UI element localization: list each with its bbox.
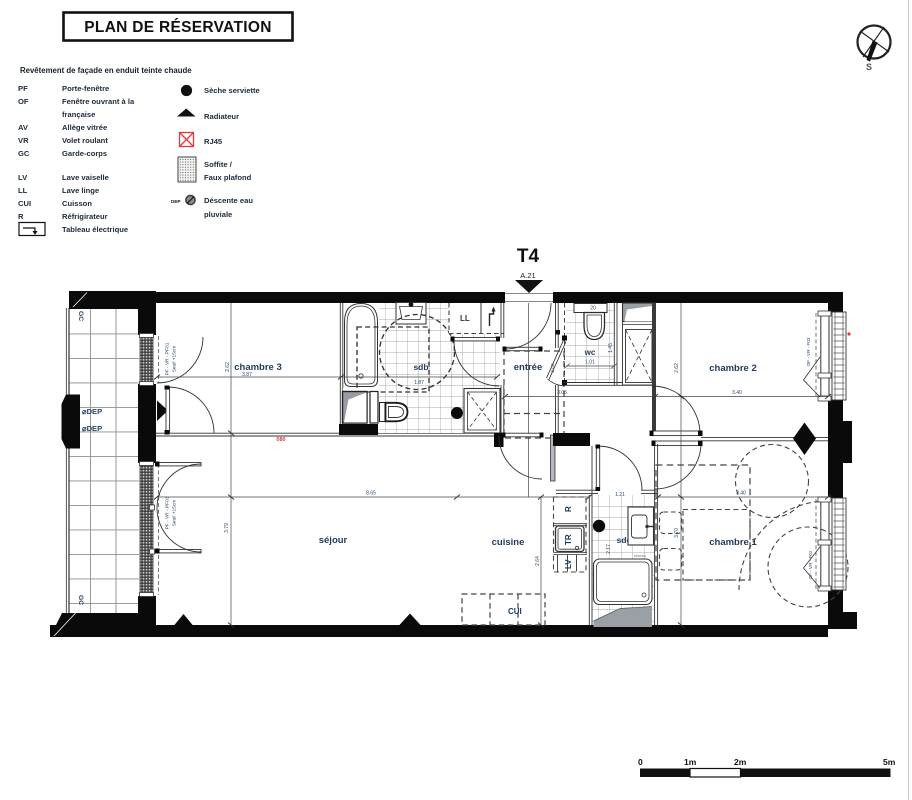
svg-text:2.62: 2.62 [225,362,231,372]
svg-text:CUI: CUI [18,199,31,208]
svg-text:OF - VR - F03: OF - VR - F03 [806,337,811,366]
svg-text:1m: 1m [684,757,697,767]
svg-text:3.05: 3.05 [557,390,567,396]
svg-text:⌀DEP: ⌀DEP [82,407,102,416]
svg-text:wc: wc [584,348,596,357]
svg-text:séjour: séjour [319,535,348,546]
svg-text:Revêtement de façade en enduit: Revêtement de façade en enduit teinte ch… [20,66,192,75]
svg-text:LL: LL [460,314,470,323]
svg-text:20: 20 [590,306,596,312]
svg-text:5m: 5m [883,757,896,767]
svg-text:Fenêtre ouvrant à la: Fenêtre ouvrant à la [62,97,135,106]
svg-text:Cuisson: Cuisson [62,199,92,208]
svg-text:Lave linge: Lave linge [62,186,99,195]
svg-text:Seuil +15cm: Seuil +15cm [172,500,178,527]
svg-text:Volet roulant: Volet roulant [62,136,108,145]
svg-text:PF - VR - PF01: PF - VR - PF01 [165,342,171,375]
svg-text:OF - VR - F02: OF - VR - F02 [808,550,813,579]
svg-text:cuisine: cuisine [492,537,525,548]
svg-text:PLAN DE RÉSERVATION: PLAN DE RÉSERVATION [84,19,271,36]
svg-text:pluviale: pluviale [204,210,232,219]
svg-text:AV: AV [18,123,29,132]
svg-text:3.40: 3.40 [732,390,742,396]
svg-text:entrée: entrée [514,362,543,373]
svg-text:Réfrigirateur: Réfrigirateur [62,212,108,221]
svg-text:Tableau électrique: Tableau électrique [62,225,128,234]
svg-text:PF: PF [18,84,28,93]
svg-text:1.45: 1.45 [608,343,614,353]
svg-text:2.17: 2.17 [606,544,612,554]
svg-text:R: R [564,506,573,512]
svg-text:Sèche serviette: Sèche serviette [204,86,260,95]
svg-text:2.64: 2.64 [535,556,541,566]
svg-text:S: S [866,62,872,72]
svg-text:réseau: réseau [634,553,646,558]
svg-text:1.01: 1.01 [585,360,595,366]
svg-text:LV: LV [564,559,573,569]
svg-text:RJ45: RJ45 [204,137,223,146]
svg-text:2m: 2m [734,757,747,767]
svg-text:Seuil +15cm: Seuil +15cm [172,346,178,373]
svg-text:LL: LL [18,186,28,195]
svg-text:sdb: sdb [413,362,428,372]
svg-text:française: française [62,110,95,119]
svg-text:Déscente eau: Déscente eau [204,196,253,205]
svg-text:2.03: 2.03 [550,363,556,373]
svg-text:Garde-corps: Garde-corps [62,149,107,158]
svg-text:GC: GC [18,149,30,158]
svg-text:Soffite /: Soffite / [204,160,233,169]
svg-text:PF - VR - PF03: PF - VR - PF03 [165,496,171,529]
svg-text:A.21: A.21 [520,271,535,280]
svg-text:⌀DEP: ⌀DEP [82,424,102,433]
svg-text:3.40: 3.40 [736,491,746,497]
svg-text:Lave vaiselle: Lave vaiselle [62,173,109,182]
svg-text:1.87: 1.87 [414,380,424,386]
svg-text:R: R [18,212,24,221]
svg-text:Porte-fenêtre: Porte-fenêtre [62,84,109,93]
svg-text:Faux plafond: Faux plafond [204,173,252,182]
svg-text:2.62: 2.62 [674,363,680,373]
svg-text:DEP: DEP [171,199,180,204]
svg-text:8.65: 8.65 [366,491,376,497]
svg-text:T4: T4 [517,246,540,267]
svg-text:Allège vitrée: Allège vitrée [62,123,107,132]
svg-text:3.79: 3.79 [224,523,230,533]
svg-text:0: 0 [638,757,643,767]
svg-text:chambre 2: chambre 2 [709,363,757,374]
svg-text:3.70: 3.70 [674,528,680,538]
svg-text:OF: OF [18,97,29,106]
svg-text:VR: VR [18,136,29,145]
svg-text:1.21: 1.21 [615,492,625,498]
svg-text:LV: LV [18,173,28,182]
svg-text:CUI: CUI [508,607,522,616]
svg-text:Radiateur: Radiateur [204,112,239,121]
svg-text:080: 080 [276,437,285,443]
svg-text:TR: TR [564,534,573,545]
svg-text:GC: GC [77,311,84,321]
svg-text:GC: GC [77,595,84,605]
